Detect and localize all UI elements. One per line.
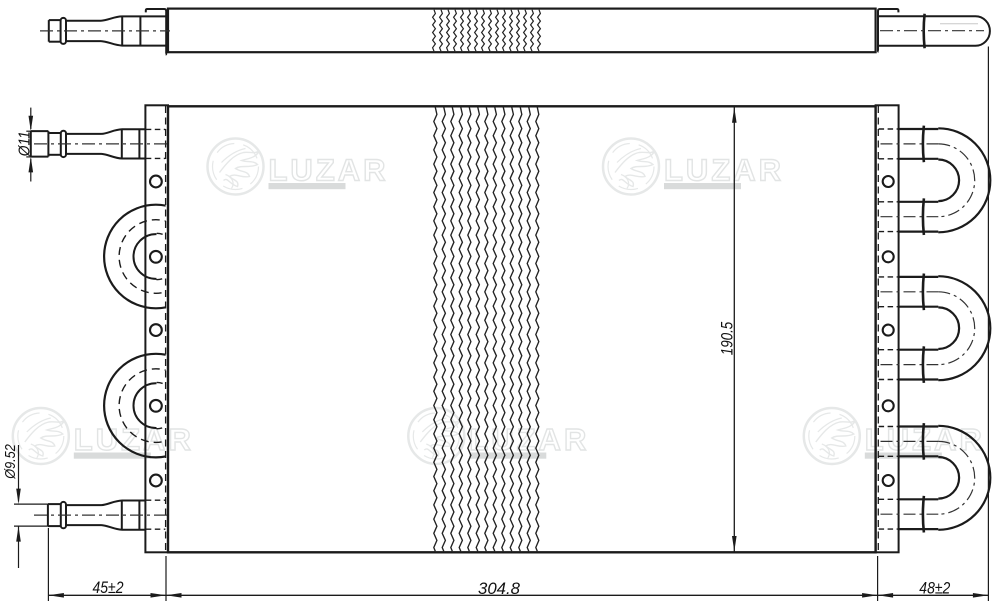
svg-text:LUZAR: LUZAR xyxy=(664,153,784,188)
svg-text:LUZAR: LUZAR xyxy=(269,153,389,188)
svg-text:45±2: 45±2 xyxy=(93,578,124,597)
svg-text:48±2: 48±2 xyxy=(919,579,950,598)
svg-text:304.8: 304.8 xyxy=(478,579,521,598)
svg-text:Ø11: Ø11 xyxy=(16,131,33,157)
svg-text:190.5: 190.5 xyxy=(718,321,737,355)
svg-text:Ø9.52: Ø9.52 xyxy=(3,444,19,479)
